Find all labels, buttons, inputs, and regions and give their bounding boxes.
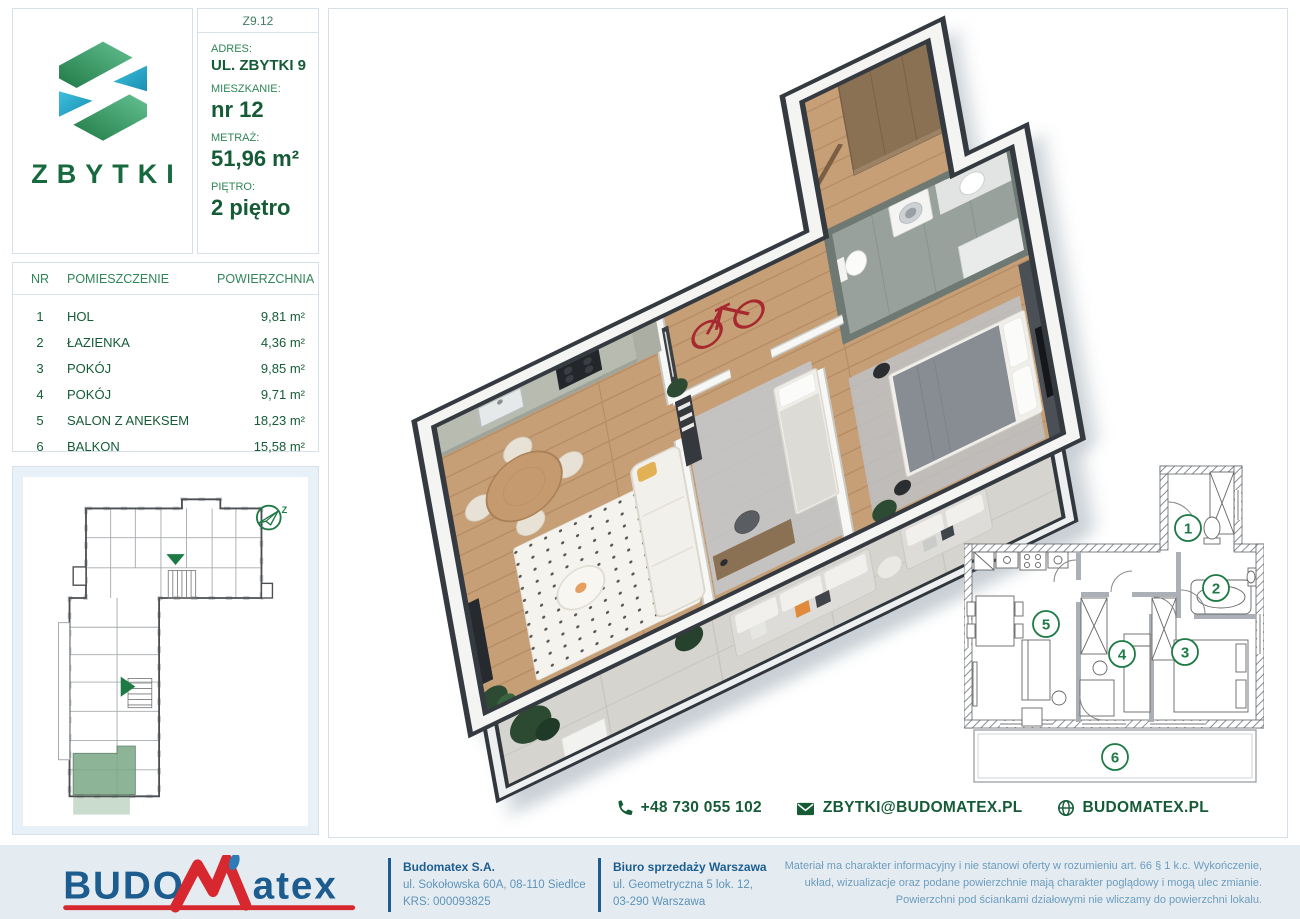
contact-row: +48 730 055 102 ZBYTKI@BUDOMATEX.PL BUDO… bbox=[616, 799, 1209, 817]
entrance-marker-top bbox=[166, 554, 184, 565]
company-info-block: Budomatex S.A. ul. Sokołowska 60A, 08-11… bbox=[388, 858, 586, 912]
zbytki-logo-icon bbox=[43, 27, 163, 149]
address-block: ADRES: UL. ZBYTKI 9 bbox=[211, 43, 318, 74]
sales-office-block: Biuro sprzedaży Warszawa ul. Geometryczn… bbox=[598, 858, 767, 912]
legal-disclaimer: Materiał ma charakter informacyjny i nie… bbox=[784, 858, 1262, 909]
room-number: 2 bbox=[1212, 580, 1220, 597]
room-number: 4 bbox=[1118, 646, 1127, 663]
row-area: 9,81 m² bbox=[217, 309, 318, 324]
table-row: 2 ŁAZIENKA 4,36 m² bbox=[13, 329, 318, 355]
office-city: 03-290 Warszawa bbox=[613, 894, 767, 912]
company-name: Budomatex S.A. bbox=[403, 858, 586, 877]
footer-bar: BUDO atex Budomatex S.A. ul. Sokołowska … bbox=[0, 845, 1300, 919]
room-number: 5 bbox=[1042, 616, 1050, 633]
row-room: ŁAZIENKA bbox=[67, 335, 217, 350]
highlighted-unit[interactable] bbox=[73, 746, 135, 794]
unit-info-panel: Z9.12 ADRES: UL. ZBYTKI 9 MIESZKANIE: nr… bbox=[197, 8, 319, 254]
header-area: POWIERZCHNIA bbox=[217, 272, 327, 286]
room-number: 3 bbox=[1181, 644, 1189, 661]
row-room: SALON Z ANEKSEM bbox=[67, 413, 217, 428]
header-room: POMIESZCZENIE bbox=[67, 272, 217, 286]
row-area: 18,23 m² bbox=[217, 413, 318, 428]
phone-number: +48 730 055 102 bbox=[641, 799, 762, 817]
row-area: 9,71 m² bbox=[217, 387, 318, 402]
table-row: 1 HOL 9,81 m² bbox=[13, 303, 318, 329]
budomatex-logo-text-2: atex bbox=[253, 865, 338, 908]
compass-label: Z bbox=[282, 505, 288, 515]
row-area: 15,58 m² bbox=[217, 439, 318, 454]
row-nr: 5 bbox=[13, 413, 67, 428]
office-name: Biuro sprzedaży Warszawa bbox=[613, 858, 767, 877]
room-number: 6 bbox=[1111, 749, 1119, 766]
website-url: BUDOMATEX.PL bbox=[1083, 799, 1209, 817]
unit-code: Z9.12 bbox=[198, 9, 318, 33]
highlighted-unit-balcony bbox=[73, 794, 130, 814]
area-label: METRAŻ: bbox=[211, 132, 318, 144]
row-area: 4,36 m² bbox=[217, 335, 318, 350]
table-row: 3 POKÓJ 9,85 m² bbox=[13, 355, 318, 381]
floor-block: PIĘTRO: 2 piętro bbox=[211, 181, 318, 221]
row-room: HOL bbox=[67, 309, 217, 324]
project-name: ZBYTKI bbox=[13, 159, 192, 190]
row-nr: 4 bbox=[13, 387, 67, 402]
row-area: 9,85 m² bbox=[217, 361, 318, 376]
building-plan-panel: Z bbox=[12, 466, 319, 835]
address-value: UL. ZBYTKI 9 bbox=[211, 57, 318, 74]
table-row: 5 SALON Z ANEKSEM 18,23 m² bbox=[13, 407, 318, 433]
office-address: ul. Geometryczna 5 lok. 12, bbox=[613, 877, 767, 895]
globe-icon bbox=[1057, 799, 1075, 817]
row-room: POKÓJ bbox=[67, 361, 217, 376]
area-value: 51,96 m² bbox=[211, 146, 318, 172]
apartment-offer-sheet: ZBYTKI Z9.12 ADRES: UL. ZBYTKI 9 MIESZKA… bbox=[0, 0, 1300, 919]
phone-contact[interactable]: +48 730 055 102 bbox=[616, 799, 762, 817]
email-address: ZBYTKI@BUDOMATEX.PL bbox=[823, 799, 1023, 817]
rooms-table-header: NR POMIESZCZENIE POWIERZCHNIA bbox=[13, 263, 318, 295]
floor-value: 2 piętro bbox=[211, 195, 318, 221]
apartment-block: MIESZKANIE: nr 12 bbox=[211, 83, 318, 123]
row-nr: 2 bbox=[13, 335, 67, 350]
building-plan-card: Z bbox=[23, 477, 308, 826]
phone-icon bbox=[616, 800, 633, 817]
row-room: BALKON bbox=[67, 439, 217, 454]
table-row: 6 BALKON 15,58 m² bbox=[13, 433, 318, 459]
visualization-panel: 1 2 3 4 5 6 +48 730 055 102 bbox=[328, 8, 1288, 838]
apartment-label: MIESZKANIE: bbox=[211, 83, 318, 95]
company-address: ul. Sokołowska 60A, 08-110 Siedlce bbox=[403, 877, 586, 895]
building-floor-plan: Z bbox=[23, 481, 308, 821]
row-room: POKÓJ bbox=[67, 387, 217, 402]
area-block: METRAŻ: 51,96 m² bbox=[211, 132, 318, 172]
address-label: ADRES: bbox=[211, 43, 318, 55]
company-krs: KRS: 000093825 bbox=[403, 894, 586, 912]
budomatex-logo-text-1: BUDO bbox=[63, 865, 185, 908]
budomatex-logo: BUDO atex bbox=[58, 855, 370, 913]
floor-label: PIĘTRO: bbox=[211, 181, 318, 193]
rooms-table: NR POMIESZCZENIE POWIERZCHNIA 1 HOL 9,81… bbox=[12, 262, 319, 452]
email-contact[interactable]: ZBYTKI@BUDOMATEX.PL bbox=[796, 799, 1023, 817]
header-nr: NR bbox=[13, 272, 67, 286]
project-logo-panel: ZBYTKI bbox=[12, 8, 193, 254]
website-contact[interactable]: BUDOMATEX.PL bbox=[1057, 799, 1209, 817]
row-nr: 3 bbox=[13, 361, 67, 376]
apartment-value: nr 12 bbox=[211, 97, 318, 123]
apartment-2d-plan: 1 2 3 4 5 6 bbox=[964, 464, 1264, 796]
room-number: 1 bbox=[1184, 520, 1192, 537]
table-row: 4 POKÓJ 9,71 m² bbox=[13, 381, 318, 407]
mail-icon bbox=[796, 800, 815, 817]
row-nr: 6 bbox=[13, 439, 67, 454]
row-nr: 1 bbox=[13, 309, 67, 324]
